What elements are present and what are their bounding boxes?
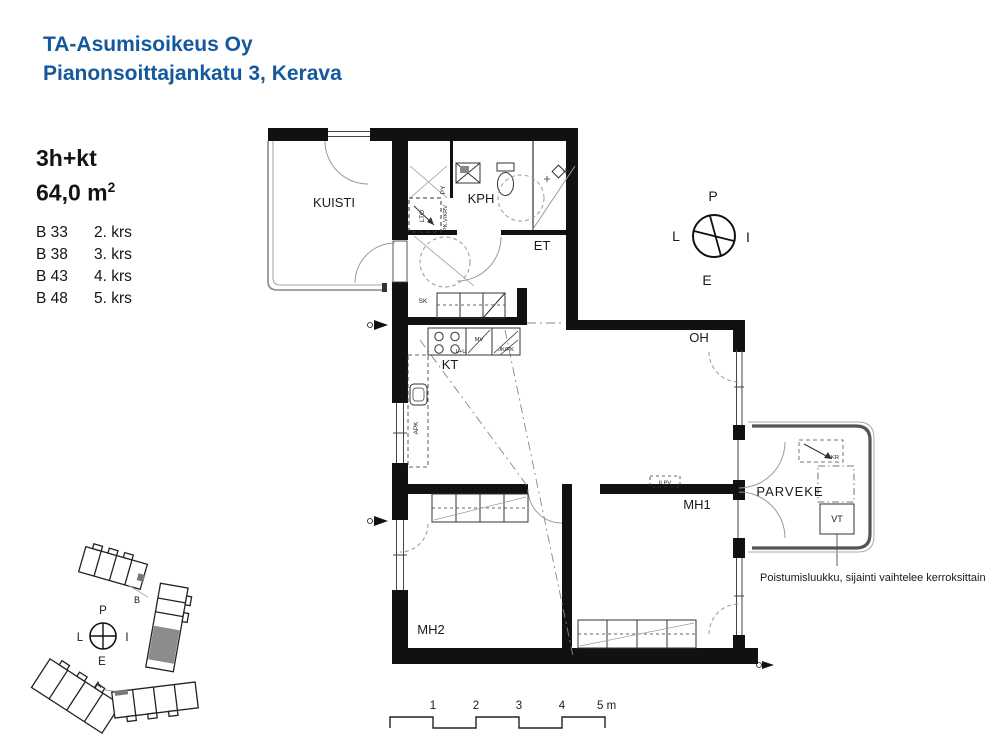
kuisti-entry-arc	[325, 141, 368, 184]
unit-id: B 48	[36, 288, 94, 310]
floorplan-drawing: KUISTI KPH ET KT OH MH1 MH2 PARVEKE LTO …	[0, 0, 1000, 750]
unit-row: B 434. krs	[36, 266, 132, 288]
windows	[328, 132, 744, 636]
floorplan-page: KUISTI KPH ET KT OH MH1 MH2 PARVEKE LTO …	[0, 0, 1000, 750]
site-compass-west: L	[77, 632, 84, 644]
site-compass: P I E L	[77, 605, 129, 668]
floor-drain	[544, 165, 569, 182]
area-exponent: 2	[108, 180, 116, 195]
oh-window-arc	[709, 352, 739, 382]
compass-south: E	[702, 272, 711, 288]
room-label-oh: OH	[689, 330, 709, 345]
sink-counter	[408, 355, 428, 467]
site-compass-north: P	[99, 605, 107, 617]
site-plan: P I E L A B	[32, 542, 199, 733]
mh2-window-arc	[400, 524, 428, 552]
room-label-mh1: MH1	[683, 497, 710, 512]
compass-west: L	[672, 228, 680, 244]
kuisti-door-leaf	[393, 241, 407, 282]
scale-end-label: 5 m	[597, 700, 616, 712]
unit-row: B 332. krs	[36, 222, 132, 244]
room-label-kt: KT	[442, 357, 459, 372]
label-ilpv: ILPV	[659, 481, 672, 487]
unit-floor: 2. krs	[94, 222, 132, 244]
unit-id: B 38	[36, 244, 94, 266]
room-label-et: ET	[534, 238, 551, 253]
apartment-info: 3h+kt 64,0 m2 B 332. krs B 383. krs B 43…	[36, 144, 132, 310]
compass-north: P	[708, 188, 717, 204]
unit-row: B 383. krs	[36, 244, 132, 266]
company-name: TA-Asumisoikeus Oy	[43, 30, 342, 59]
label-jk-pk: JK/PK	[498, 347, 514, 353]
site-label-a: A	[95, 680, 101, 690]
label-mv: MV	[475, 337, 484, 343]
room-label-kph: KPH	[468, 191, 495, 206]
window-kt-left	[393, 403, 407, 463]
label-ppkv-krv: PPK.V/KRV	[443, 205, 449, 235]
label-py: PY	[440, 185, 447, 194]
washing-machine	[456, 163, 480, 183]
scale-tick-4: 4	[559, 700, 566, 712]
sk-closet-row	[437, 293, 505, 318]
kph-door-arc	[457, 237, 501, 281]
mh1-window-arc	[709, 604, 739, 634]
label-sk: SK	[419, 298, 428, 305]
site-compass-east: I	[125, 632, 128, 644]
apartment-type: 3h+kt	[36, 144, 132, 173]
label-apk: APK	[413, 421, 420, 435]
site-building-left	[32, 655, 124, 733]
label-lto: LTO	[419, 210, 426, 222]
label-l-u: L+U	[456, 349, 467, 355]
compass-east: I	[746, 229, 750, 245]
mh2-wardrobes	[432, 494, 528, 522]
scale-tick-3: 3	[516, 700, 522, 712]
room-label-mh2: MH2	[417, 622, 444, 637]
site-building-top	[79, 542, 150, 590]
scale-tick-2: 2	[473, 700, 479, 712]
site-label-b: B	[134, 595, 140, 605]
unit-list: B 332. krs B 383. krs B 434. krs B 485. …	[36, 222, 132, 310]
unit-row: B 485. krs	[36, 288, 132, 310]
mh2-door-arc	[528, 489, 562, 523]
annotation-text: Poistumisluukku, sijainti vaihtelee kerr…	[760, 572, 986, 584]
unit-floor: 3. krs	[94, 244, 132, 266]
window-oh-right	[734, 350, 744, 425]
scale-bar: 1 2 3 4 5 m	[390, 700, 616, 728]
unit-floor: 4. krs	[94, 266, 132, 288]
scale-tick-1: 1	[430, 700, 436, 712]
site-compass-south: E	[98, 656, 106, 668]
label-vt: VT	[831, 514, 843, 524]
unit-id: B 33	[36, 222, 94, 244]
room-label-parveke: PARVEKE	[756, 484, 823, 499]
mh1-wardrobes	[578, 620, 696, 648]
site-building-right	[112, 681, 199, 723]
shower-circle	[498, 175, 544, 221]
street-address: Pianonsoittajankatu 3, Kerava	[43, 59, 342, 88]
kuisti-glazing	[268, 141, 387, 292]
window-mh1-right	[734, 558, 744, 635]
room-label-kuisti: KUISTI	[313, 195, 355, 210]
compass-rose: P I E L	[672, 188, 750, 288]
kuisti-hall-arc	[355, 243, 395, 283]
balcony-door-arc-oh	[739, 442, 785, 488]
site-building-b	[146, 583, 193, 672]
window-kuisti-top	[328, 132, 370, 137]
apartment-area: 64,0 m2	[36, 173, 132, 208]
window-mh2-left	[393, 520, 407, 590]
unit-floor: 5. krs	[94, 288, 132, 310]
document-header: TA-Asumisoikeus Oy Pianonsoittajankatu 3…	[43, 30, 342, 88]
label-kr: KR	[831, 455, 839, 461]
area-value: 64,0 m	[36, 180, 108, 206]
unit-id: B 43	[36, 266, 94, 288]
